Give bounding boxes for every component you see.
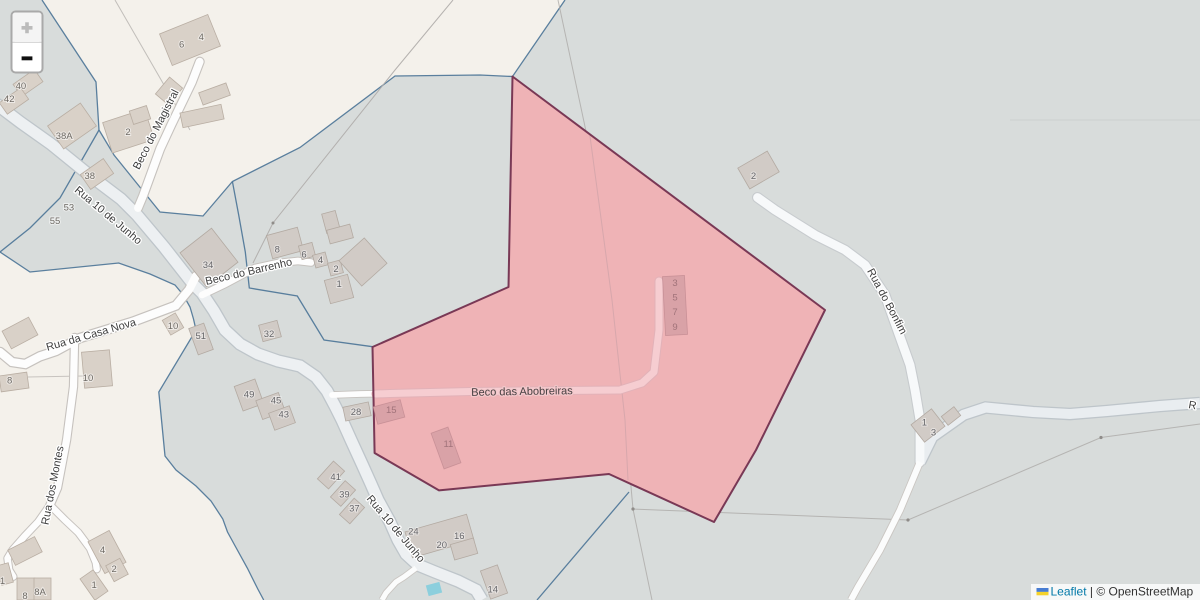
svg-text:45: 45 [271,396,282,407]
svg-text:49: 49 [244,390,255,401]
svg-text:14: 14 [488,585,499,596]
svg-text:16: 16 [454,531,465,542]
svg-text:42: 42 [4,94,15,105]
svg-text:5: 5 [672,293,677,304]
svg-text:2: 2 [751,171,756,182]
svg-text:39: 39 [339,490,350,501]
svg-text:1: 1 [0,576,5,587]
svg-text:28: 28 [351,407,362,418]
svg-text:1: 1 [922,418,927,429]
svg-text:41: 41 [330,472,341,483]
svg-text:53: 53 [64,203,75,214]
svg-text:7: 7 [672,307,677,318]
svg-text:55: 55 [50,216,61,227]
svg-text:38: 38 [85,171,96,182]
svg-text:1: 1 [337,279,342,290]
svg-text:40: 40 [16,81,27,92]
svg-text:10: 10 [83,373,94,384]
svg-text:2: 2 [333,264,338,275]
svg-text:3: 3 [672,278,677,289]
svg-text:4: 4 [199,32,204,43]
svg-text:20: 20 [437,540,448,551]
svg-text:6: 6 [179,40,184,51]
svg-text:10: 10 [168,321,179,332]
svg-text:8: 8 [22,591,27,600]
svg-text:9: 9 [672,322,677,333]
svg-text:32: 32 [264,329,275,340]
svg-text:51: 51 [196,331,207,342]
svg-text:3: 3 [931,428,936,439]
svg-text:2: 2 [112,564,117,575]
svg-text:8A: 8A [34,587,46,598]
svg-text:Leaflet | © OpenStreetMap: Leaflet | © OpenStreetMap [1051,585,1194,599]
svg-text:8: 8 [7,376,12,387]
svg-text:1: 1 [92,580,97,591]
svg-text:Beco das Abobreiras: Beco das Abobreiras [471,385,573,399]
svg-text:34: 34 [203,260,214,271]
svg-text:4: 4 [100,545,105,556]
svg-text:11: 11 [443,439,453,450]
svg-text:38A: 38A [56,131,74,142]
svg-text:37: 37 [349,504,360,515]
svg-text:15: 15 [386,405,397,416]
svg-text:4: 4 [318,255,323,266]
svg-text:2: 2 [125,127,130,138]
svg-text:6: 6 [301,250,306,261]
svg-text:43: 43 [279,410,290,421]
svg-text:8: 8 [275,245,280,256]
